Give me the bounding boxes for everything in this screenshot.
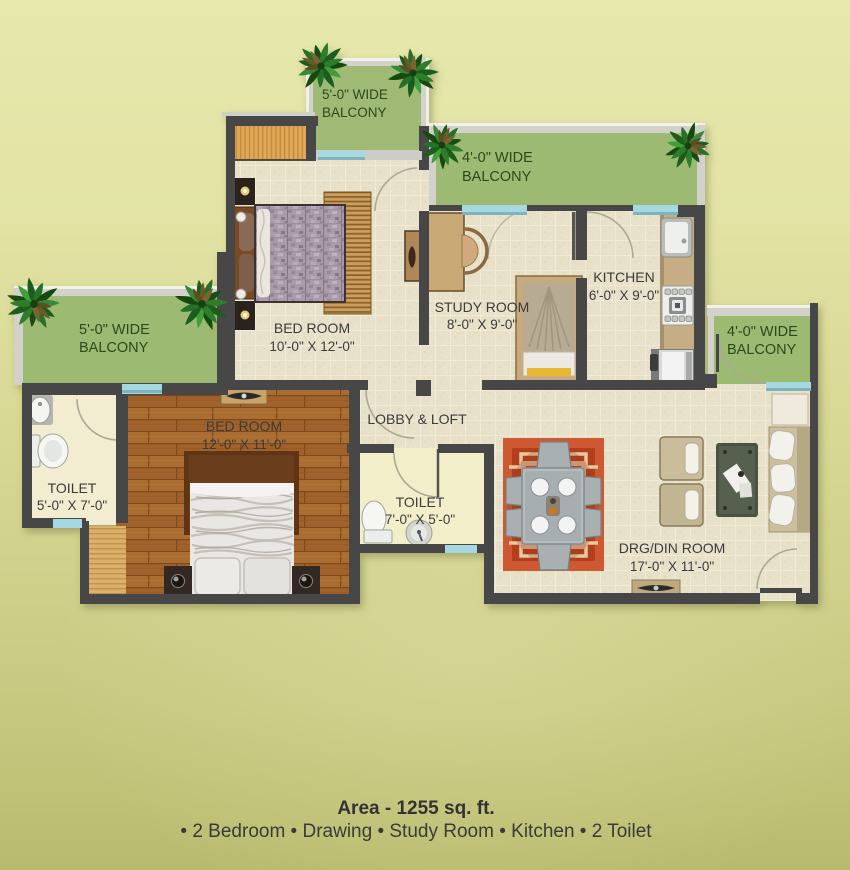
svg-text:BALCONY: BALCONY [462, 169, 532, 185]
svg-text:4'-0" WIDE: 4'-0" WIDE [462, 150, 533, 166]
svg-text:KITCHEN: KITCHEN [593, 269, 654, 285]
svg-text:10'-0" X 12'-0": 10'-0" X 12'-0" [269, 339, 354, 354]
svg-text:BED ROOM: BED ROOM [206, 418, 282, 434]
svg-text:5'-0" WIDE: 5'-0" WIDE [79, 322, 150, 338]
svg-text:DRG/DIN ROOM: DRG/DIN ROOM [619, 540, 726, 556]
svg-text:BALCONY: BALCONY [322, 105, 387, 120]
svg-text:BALCONY: BALCONY [727, 342, 797, 358]
svg-text:BED ROOM: BED ROOM [274, 320, 350, 336]
svg-text:• 2 Bedroom • Drawing • Study: • 2 Bedroom • Drawing • Study Room • Kit… [180, 821, 652, 842]
svg-text:TOILET: TOILET [48, 480, 97, 496]
svg-text:LOBBY & LOFT: LOBBY & LOFT [367, 411, 467, 427]
svg-text:8'-0" X 9'-0": 8'-0" X 9'-0" [447, 317, 517, 332]
svg-text:5'-0" WIDE: 5'-0" WIDE [322, 87, 388, 102]
svg-text:12'-0" X 11'-0": 12'-0" X 11'-0" [202, 437, 286, 452]
svg-text:BALCONY: BALCONY [79, 340, 149, 356]
svg-text:Area - 1255 sq. ft.: Area - 1255 sq. ft. [337, 798, 494, 819]
svg-text:STUDY ROOM: STUDY ROOM [435, 299, 530, 315]
svg-text:6'-0" X 9'-0": 6'-0" X 9'-0" [589, 288, 659, 303]
svg-text:17'-0" X 11'-0": 17'-0" X 11'-0" [630, 559, 714, 574]
svg-text:5'-0" X 7'-0": 5'-0" X 7'-0" [37, 498, 107, 513]
svg-text:4'-0" WIDE: 4'-0" WIDE [727, 324, 798, 340]
svg-text:7'-0" X 5'-0": 7'-0" X 5'-0" [385, 512, 455, 527]
svg-text:TOILET: TOILET [396, 494, 445, 510]
